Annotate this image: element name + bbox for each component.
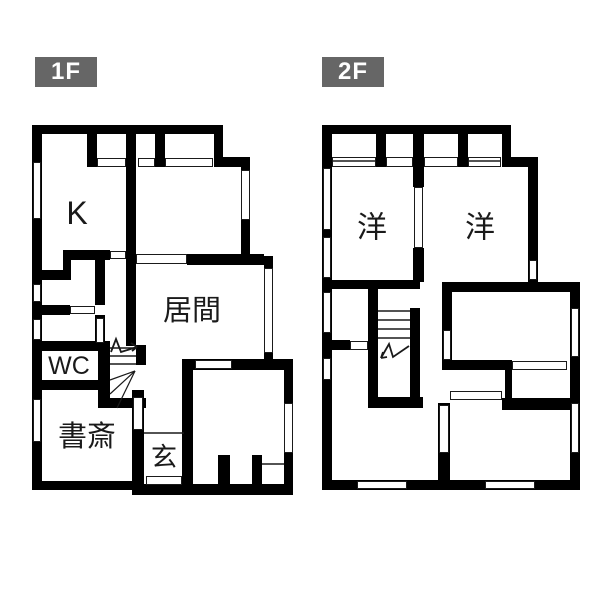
- room-labels: 洋洋: [357, 212, 495, 245]
- floorplan-canvas: K居間WC書斎玄洋洋: [0, 0, 600, 600]
- floor-label-2f: 2F: [322, 57, 384, 87]
- room-label-kitchen: K: [66, 195, 87, 231]
- room-label-living-room: 居間: [163, 295, 221, 327]
- floor-1f-plan: K居間WC書斎玄: [32, 125, 293, 495]
- room-label-entrance: 玄: [151, 442, 177, 472]
- stair-direction-arrow: [381, 344, 409, 358]
- floor-2f-plan: 洋洋: [322, 125, 580, 490]
- walls: [322, 125, 580, 490]
- room-label-western-room-1: 洋: [357, 212, 387, 245]
- room-label-western-room-2: 洋: [465, 212, 495, 245]
- room-label-study: 書斎: [58, 420, 116, 453]
- floor-label-1f: 1F: [35, 57, 97, 87]
- stairs-2f: [378, 311, 410, 358]
- floorplan-page: K居間WC書斎玄洋洋 1F 2F: [0, 0, 600, 600]
- room-label-toilet: WC: [48, 352, 90, 380]
